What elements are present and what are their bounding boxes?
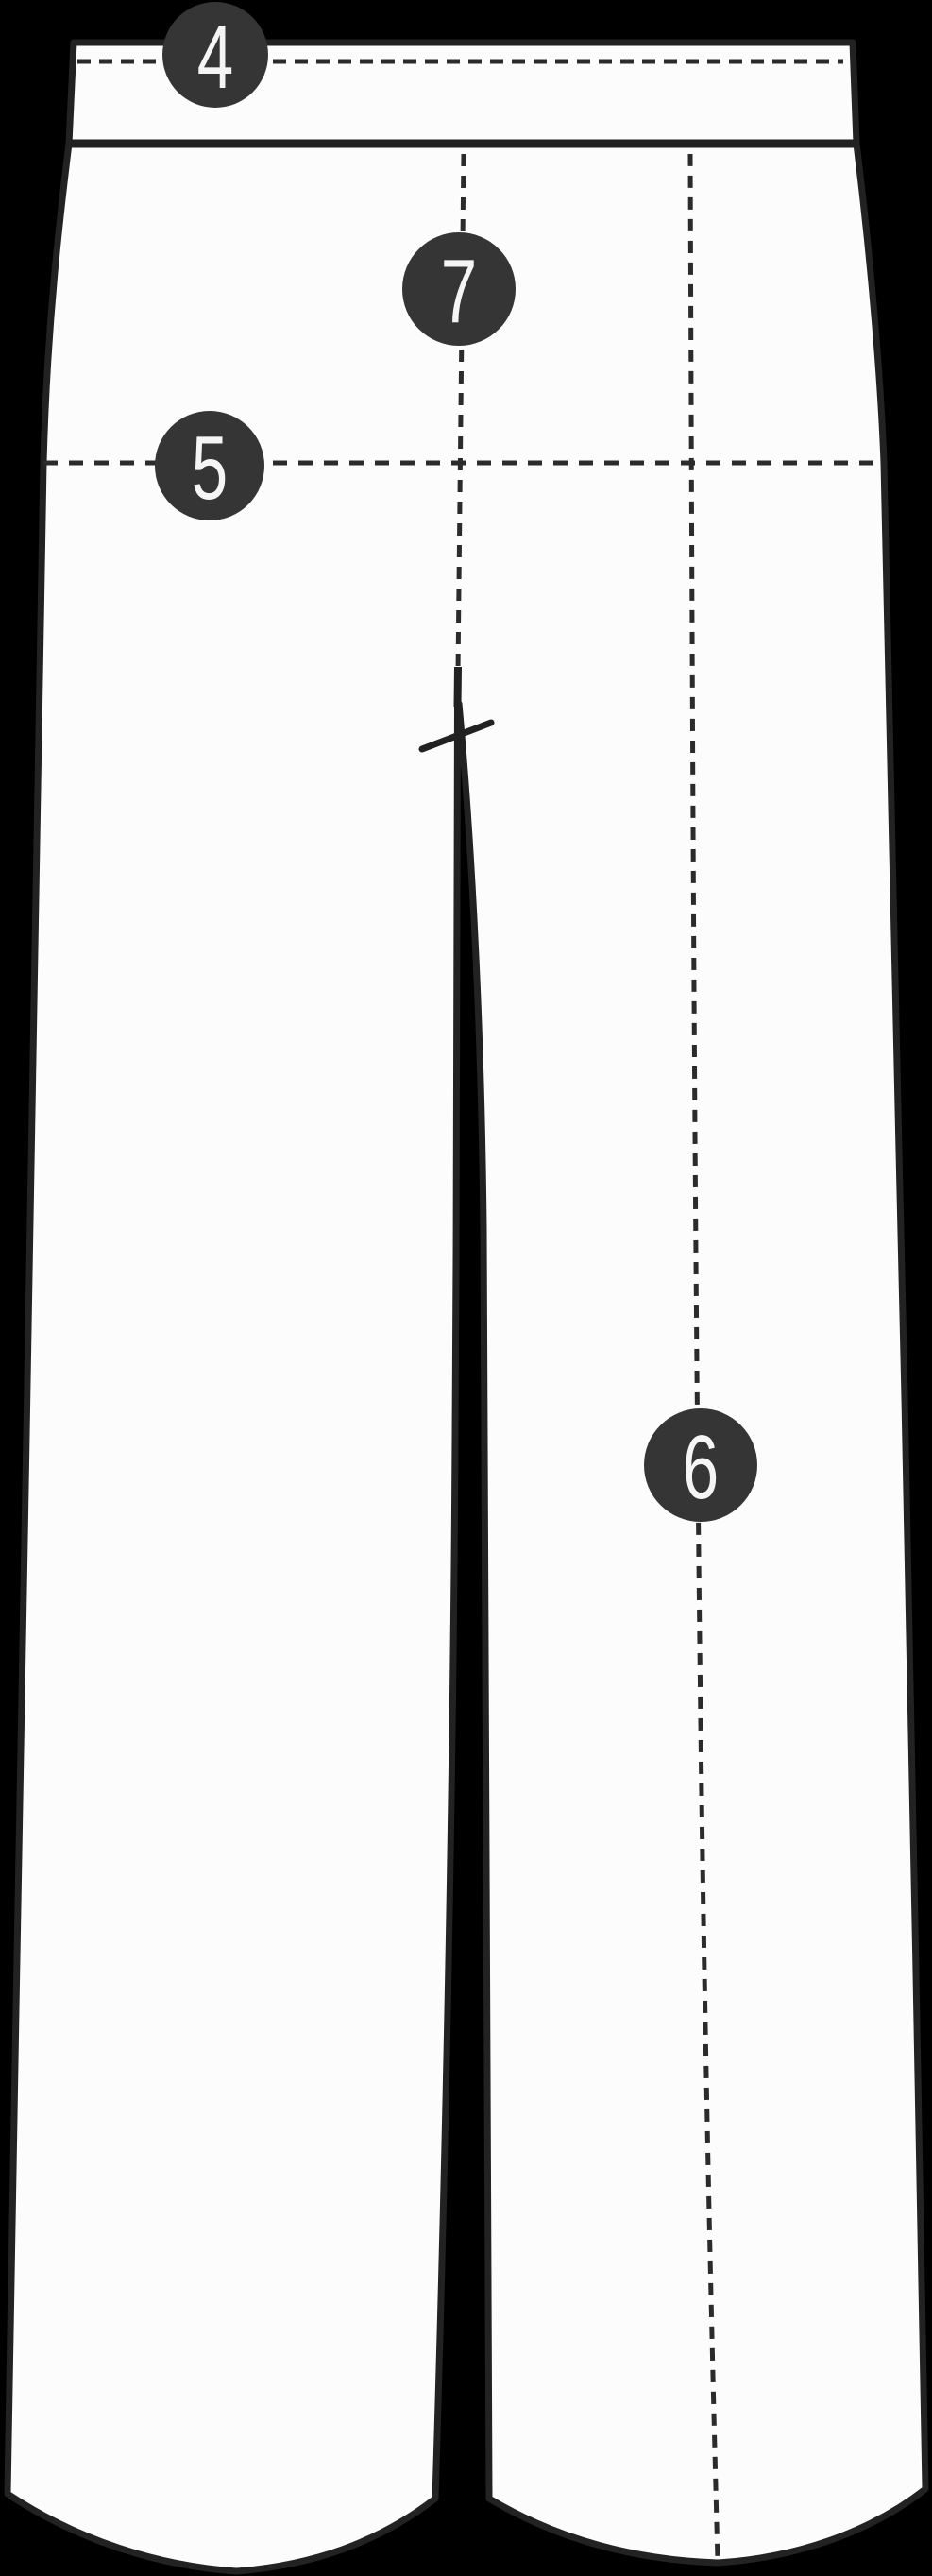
marker-7-label: 7 [441, 240, 477, 342]
size-guide-diagram: 4 5 7 6 [0, 0, 932, 2576]
marker-5-label: 5 [192, 417, 228, 519]
marker-5: 5 [155, 411, 264, 520]
marker-4-label: 4 [197, 6, 233, 108]
trousers-measurement-svg: 4 5 7 6 [0, 0, 932, 2576]
marker-4: 4 [162, 2, 268, 108]
crotch-seam-stub-line [458, 667, 459, 707]
marker-6: 6 [644, 1408, 757, 1522]
marker-7: 7 [402, 232, 516, 346]
marker-6-label: 6 [683, 1416, 719, 1518]
